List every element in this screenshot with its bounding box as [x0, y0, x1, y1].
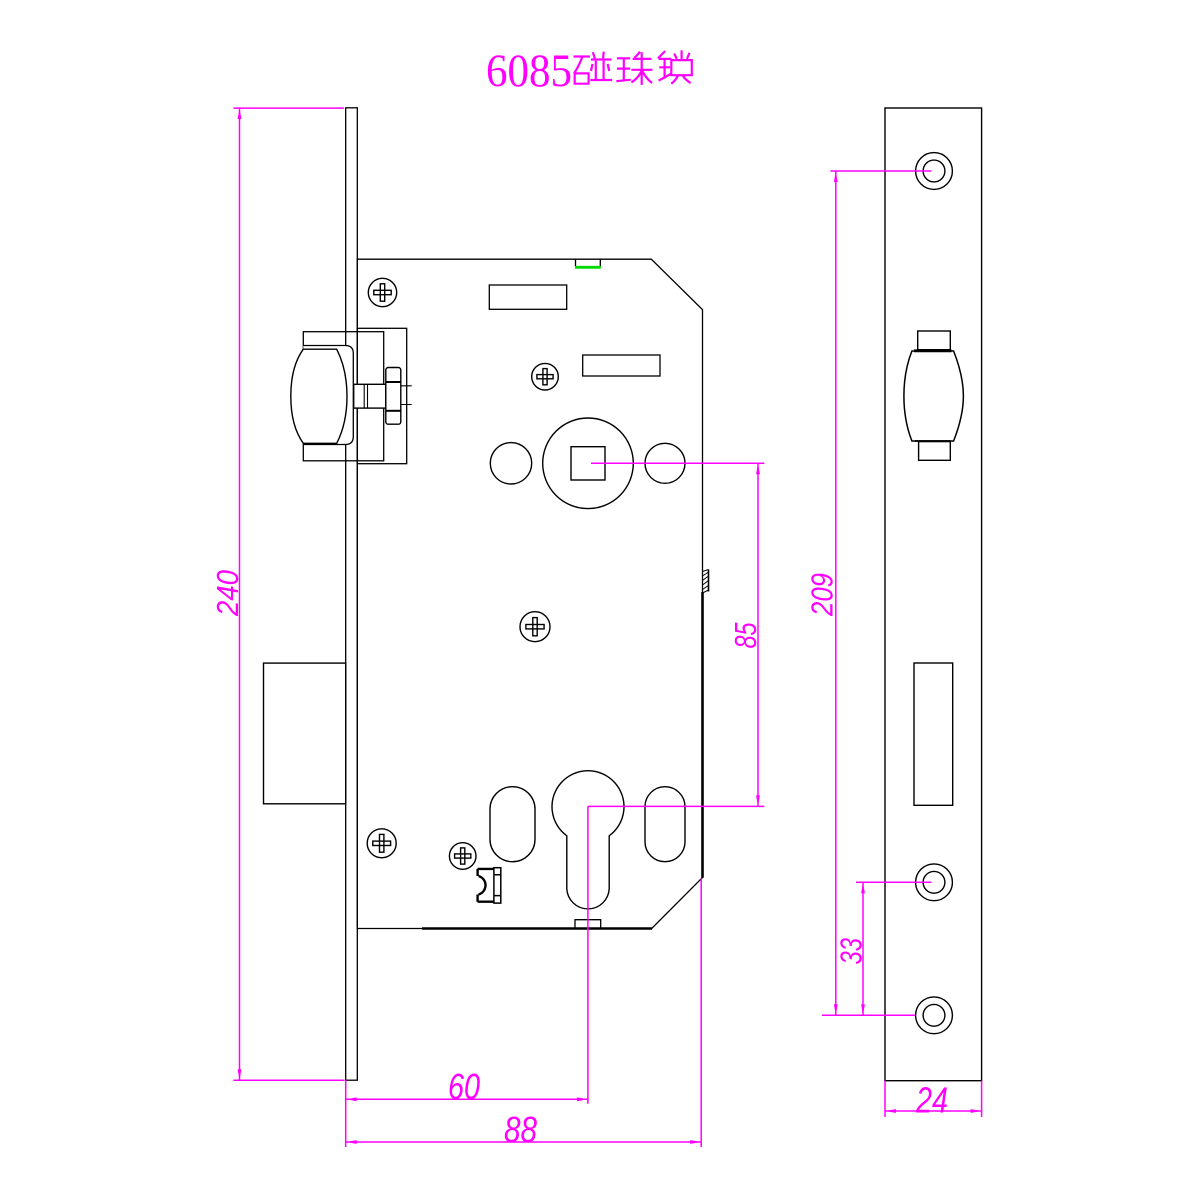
svg-text:6085: 6085 [486, 45, 572, 97]
svg-text:24: 24 [915, 1080, 948, 1121]
svg-text:85: 85 [728, 622, 763, 649]
svg-text:33: 33 [834, 938, 869, 965]
svg-text:60: 60 [448, 1066, 480, 1107]
svg-text:240: 240 [210, 570, 245, 617]
svg-text:88: 88 [504, 1109, 537, 1150]
svg-text:209: 209 [805, 573, 840, 617]
